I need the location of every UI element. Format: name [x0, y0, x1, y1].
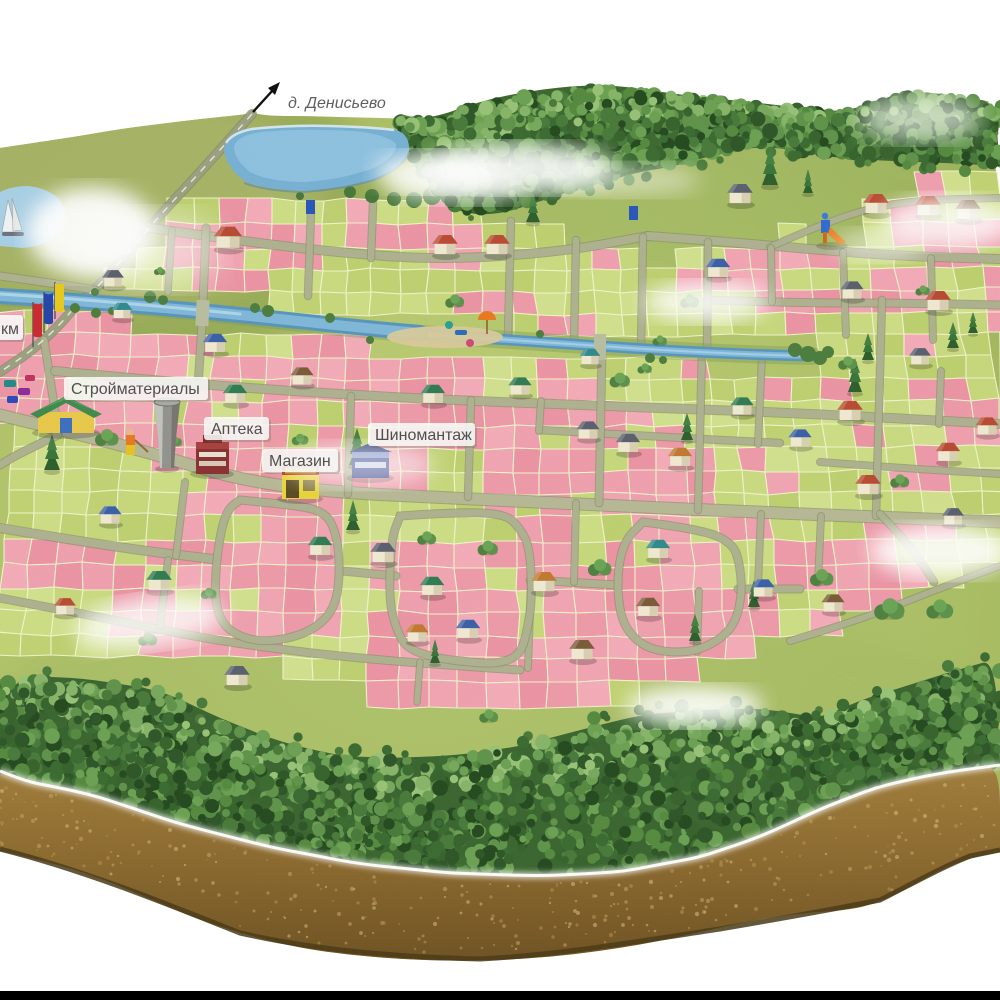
svg-text:д. Денисьево: д. Денисьево — [288, 95, 386, 112]
